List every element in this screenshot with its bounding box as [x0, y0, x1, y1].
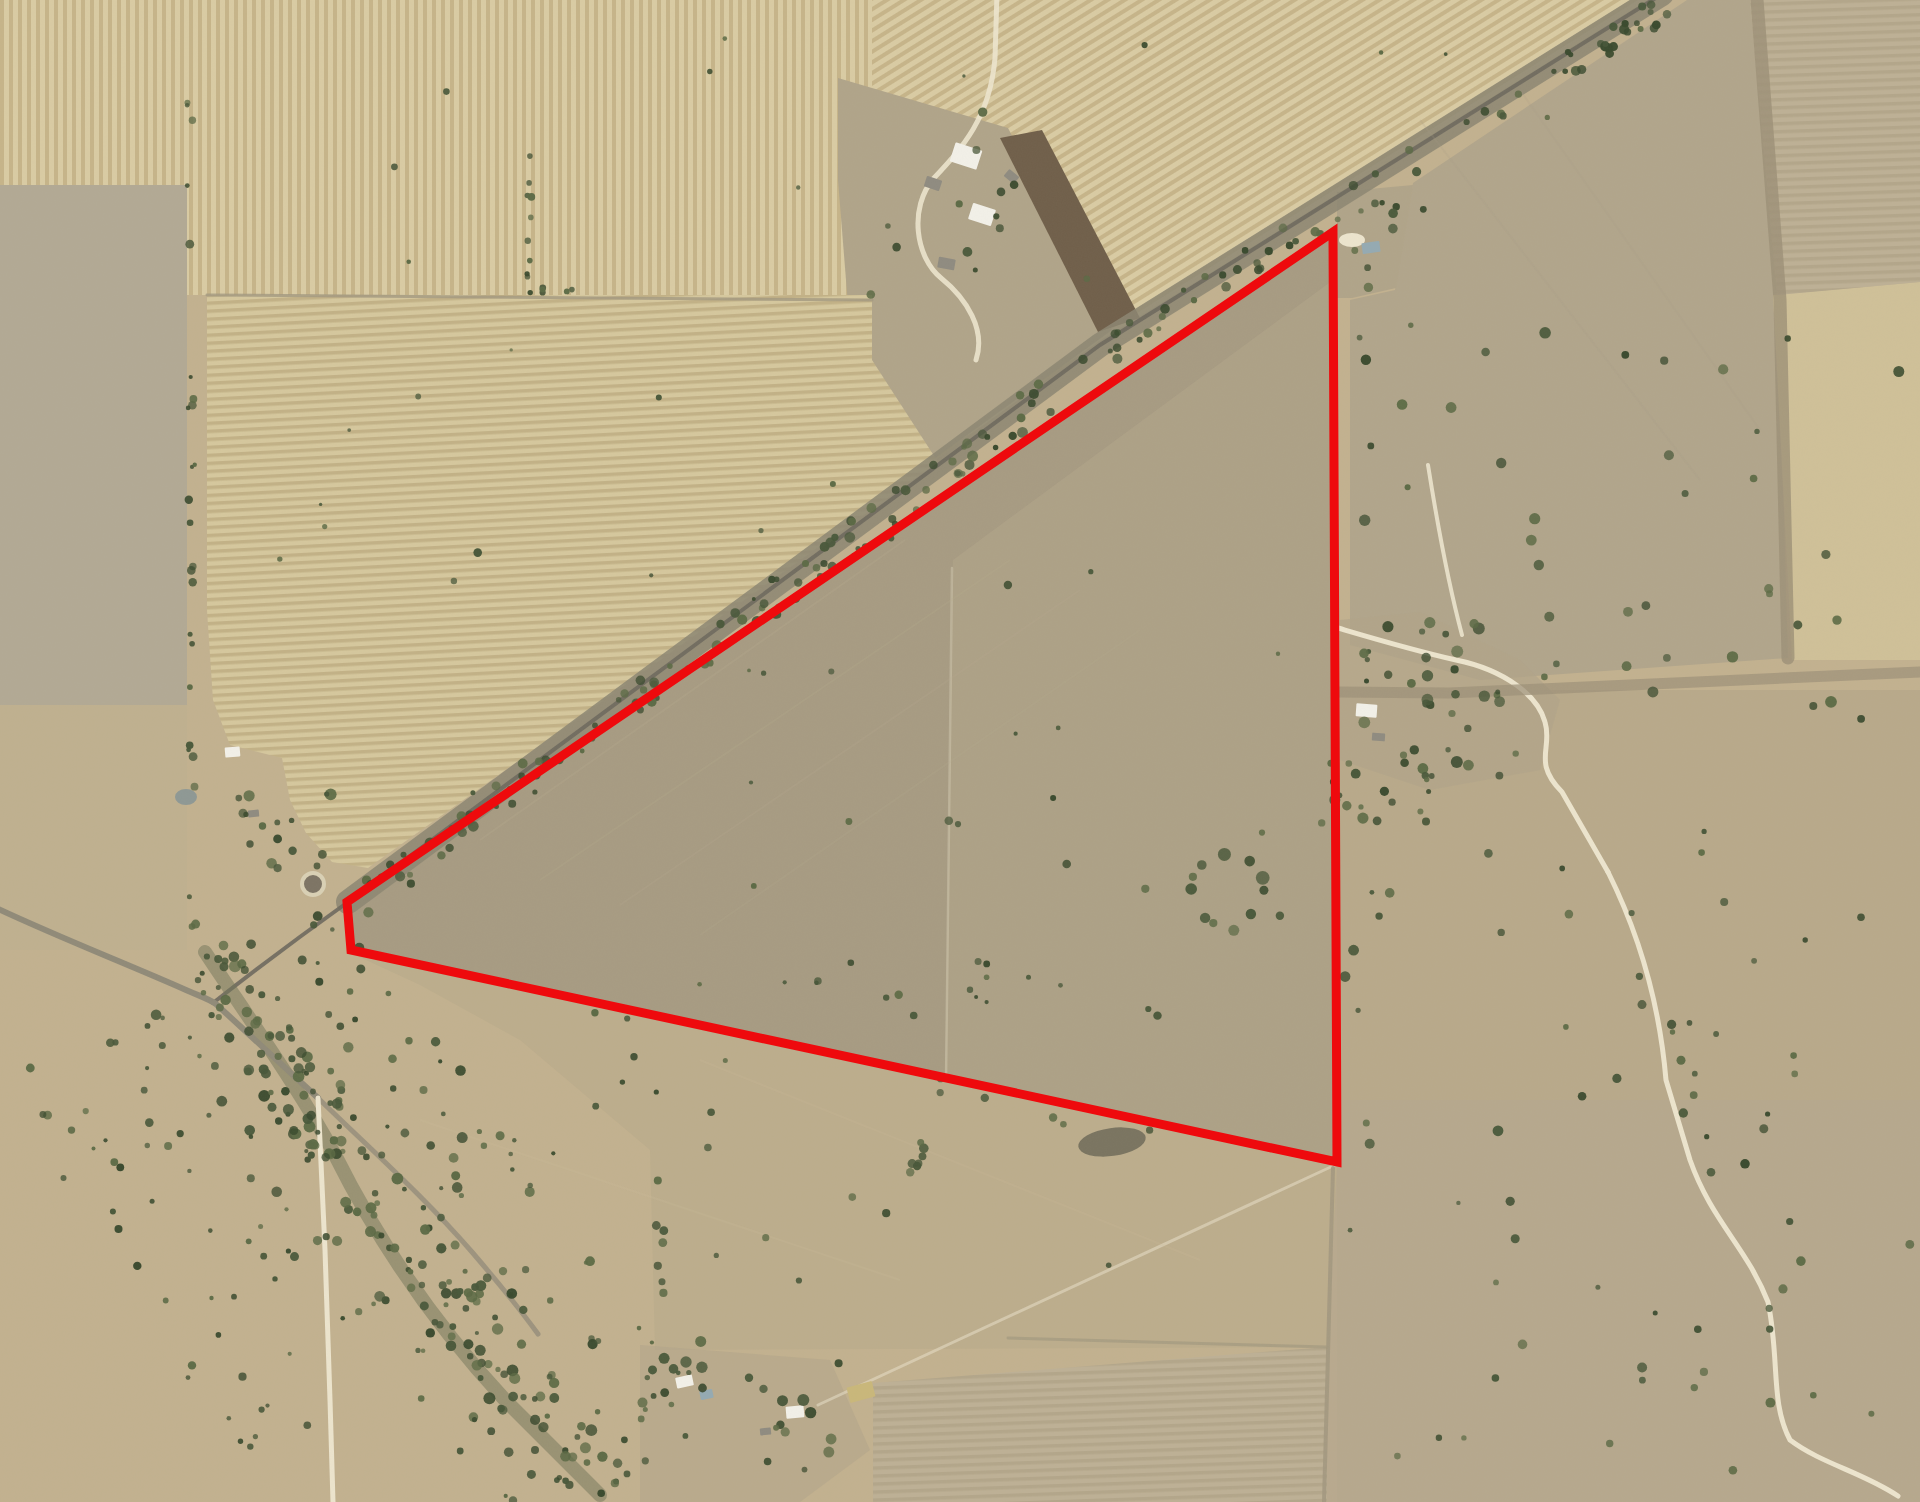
map-viewport	[0, 0, 1920, 1502]
grain-texture-overlay	[0, 0, 1920, 1502]
aerial-map-view	[0, 0, 1920, 1502]
